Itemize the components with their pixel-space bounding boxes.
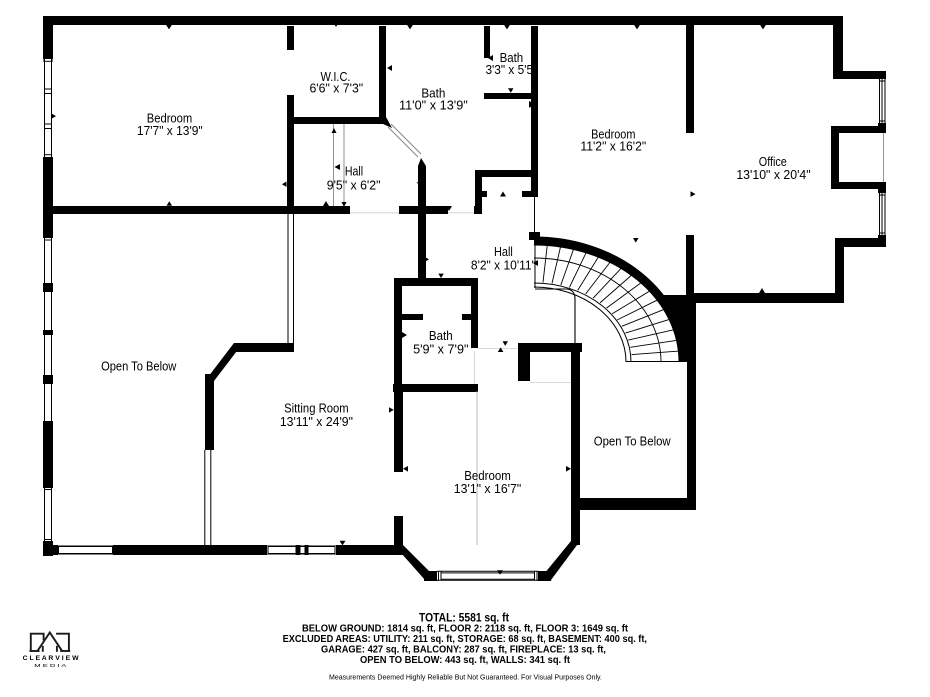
svg-text:Open To Below: Open To Below bbox=[594, 434, 671, 449]
svg-text:BELOW GROUND: 1814 sq. ft, FLO: BELOW GROUND: 1814 sq. ft, FLOOR 2: 2118… bbox=[302, 623, 629, 634]
svg-text:13'11" x 24'9": 13'11" x 24'9" bbox=[280, 414, 353, 429]
svg-text:3'3" x 5'5: 3'3" x 5'5 bbox=[485, 62, 533, 77]
svg-text:TOTAL: 5581 sq. ft: TOTAL: 5581 sq. ft bbox=[419, 611, 509, 625]
svg-text:5'9" x 7'9": 5'9" x 7'9" bbox=[413, 341, 469, 356]
svg-text:8'2" x 10'11": 8'2" x 10'11" bbox=[471, 257, 536, 272]
svg-text:6'6" x 7'3": 6'6" x 7'3" bbox=[309, 80, 363, 95]
svg-text:C L E A R V I E W: C L E A R V I E W bbox=[23, 655, 80, 662]
svg-text:Hall: Hall bbox=[345, 163, 363, 178]
svg-text:11'0" x 13'9": 11'0" x 13'9" bbox=[399, 98, 468, 113]
svg-text:M E D I A: M E D I A bbox=[34, 663, 66, 668]
svg-text:17'7" x 13'9": 17'7" x 13'9" bbox=[137, 123, 203, 138]
svg-text:13'10" x 20'4": 13'10" x 20'4" bbox=[736, 167, 811, 182]
svg-text:GARAGE: 427 sq. ft, BALCONY: 2: GARAGE: 427 sq. ft, BALCONY: 287 sq. ft,… bbox=[321, 645, 606, 656]
svg-text:Measurements Deemed Highly Rel: Measurements Deemed Highly Reliable But … bbox=[329, 674, 602, 681]
svg-text:EXCLUDED AREAS: UTILITY: 211 s: EXCLUDED AREAS: UTILITY: 211 sq. ft, STO… bbox=[283, 634, 648, 645]
svg-text:Open To Below: Open To Below bbox=[101, 358, 177, 373]
svg-text:9'5" x 6'2": 9'5" x 6'2" bbox=[327, 178, 381, 193]
svg-text:13'1" x 16'7": 13'1" x 16'7" bbox=[454, 481, 522, 496]
svg-text:OPEN TO BELOW: 443 sq. ft, WAL: OPEN TO BELOW: 443 sq. ft, WALLS: 341 sq… bbox=[360, 655, 571, 666]
svg-text:11'2" x 16'2": 11'2" x 16'2" bbox=[580, 139, 646, 154]
